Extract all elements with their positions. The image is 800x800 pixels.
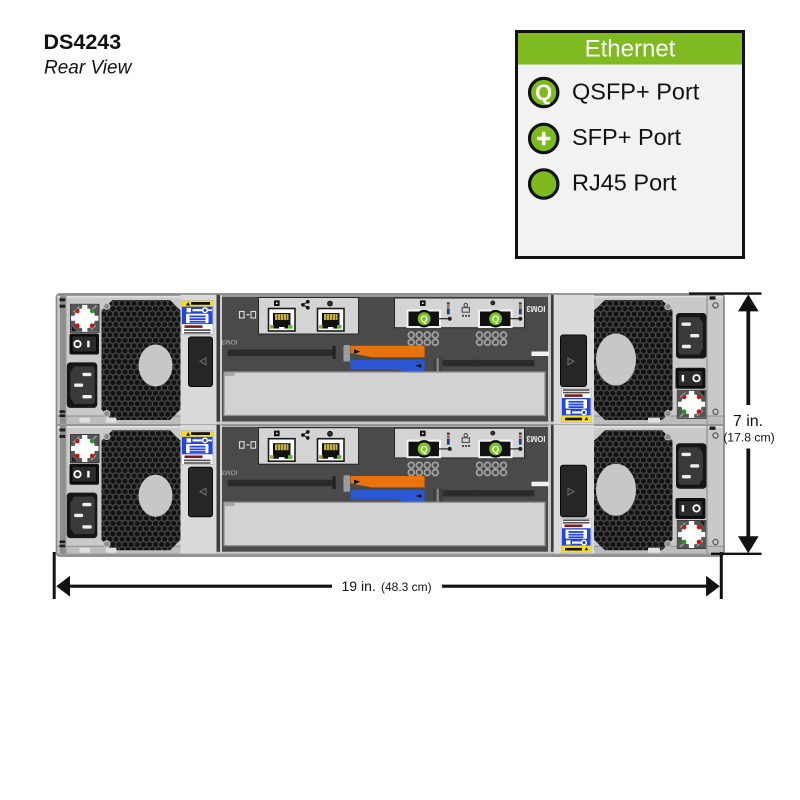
svg-text:Q: Q (535, 80, 552, 105)
svg-text:(17.8 cm): (17.8 cm) (723, 431, 774, 445)
svg-text:(48.3 cm): (48.3 cm) (381, 580, 432, 594)
svg-text:SFP+ Port: SFP+ Port (572, 124, 682, 150)
svg-text:Ethernet: Ethernet (585, 36, 676, 63)
svg-text:19 in.: 19 in. (342, 578, 376, 594)
svg-text:Rear View: Rear View (44, 58, 133, 79)
svg-text:DS4243: DS4243 (44, 30, 122, 54)
svg-text:QSFP+ Port: QSFP+ Port (572, 79, 700, 105)
svg-text:7 in.: 7 in. (733, 413, 763, 430)
svg-text:RJ45 Port: RJ45 Port (572, 170, 677, 196)
